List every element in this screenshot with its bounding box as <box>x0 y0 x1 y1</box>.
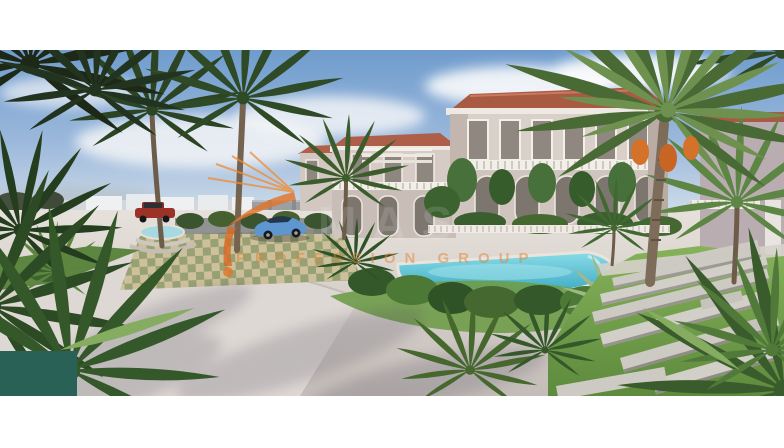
date-fruit-cluster <box>683 136 699 160</box>
date-fruit-cluster <box>631 139 649 165</box>
date-fruit-cluster <box>659 144 677 172</box>
teal-overlay-rectangle <box>0 351 77 396</box>
architectural-render-photo: MAS PROFESSION GROUP <box>0 50 784 396</box>
page-background: MAS PROFESSION GROUP <box>0 0 784 448</box>
scene <box>0 50 784 396</box>
